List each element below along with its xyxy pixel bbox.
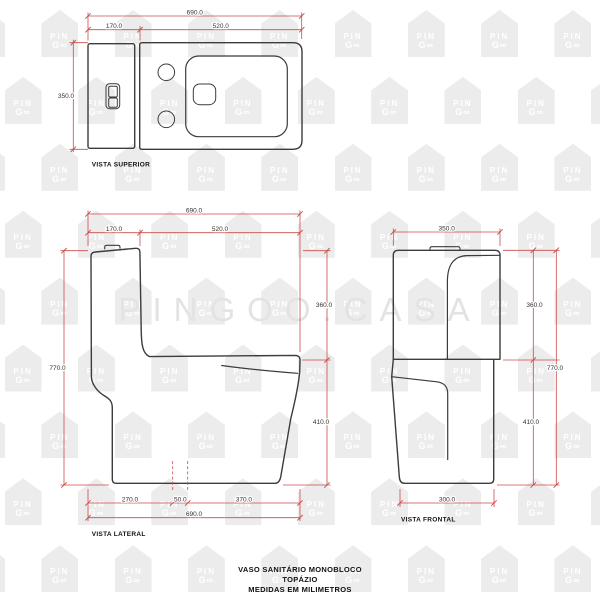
flush-button-half-top [109, 86, 118, 97]
dim-label-side-drain-offset: 50.0 [174, 497, 187, 504]
dim-label-front-tank-height: 360.0 [526, 302, 543, 309]
toilet-side-profile [91, 248, 300, 483]
front-view-dim-labels: 350.0 360.0 410.0 770.0 300.0 [439, 226, 564, 504]
front-view-outline [392, 247, 500, 484]
title-product-name: VASO SANITÁRIO MONOBLOCO [0, 565, 600, 575]
title-block: VASO SANITÁRIO MONOBLOCO TOPÁZIO MEDIDAS… [0, 565, 600, 595]
tank-front-outline [393, 250, 500, 359]
dim-label-side-base-front: 270.0 [122, 497, 139, 504]
dim-label-top-tank-depth: 170.0 [106, 23, 123, 30]
tank-top-outline [88, 44, 135, 149]
dim-label-side-base-rear: 370.0 [236, 497, 253, 504]
bolt-cap-top [158, 64, 175, 81]
side-view-caption: VISTA LATERAL [92, 531, 146, 538]
bowl-front-contour [392, 377, 448, 460]
water-outlet-outline [193, 84, 215, 105]
dim-label-side-tank-height: 360.0 [316, 302, 333, 309]
bolt-cap-bottom [158, 111, 175, 128]
side-view-outline [91, 245, 300, 483]
technical-drawing-page: PING∞PING∞PING∞PING∞PING∞PING∞PING∞PING∞… [0, 0, 600, 600]
side-view: 690.0 170.0 520.0 770.0 360.0 410.0 270.… [49, 208, 332, 539]
dim-label-side-tank-depth: 170.0 [106, 226, 123, 233]
dim-label-front-bowl-height: 410.0 [523, 419, 540, 426]
dim-label-side-total-length: 690.0 [186, 208, 203, 215]
flush-button-half-bottom [109, 98, 118, 107]
seat-split-line-side [222, 366, 298, 374]
drawing-canvas: 690.0 170.0 520.0 350.0 VISTA SUPERIOR [0, 0, 600, 600]
tank-front-contour [447, 255, 500, 359]
top-view: 690.0 170.0 520.0 350.0 VISTA SUPERIOR [58, 10, 305, 169]
dim-label-side-total-height: 770.0 [49, 365, 66, 372]
tank-lid-button-side [105, 245, 120, 249]
dim-label-front-total-height: 770.0 [547, 365, 564, 372]
dim-label-side-bowl-height: 410.0 [313, 419, 330, 426]
dim-label-top-width: 350.0 [58, 93, 75, 100]
dim-label-side-bowl-length: 520.0 [212, 226, 229, 233]
side-view-dimensions [61, 211, 331, 522]
front-view-dimensions [391, 229, 560, 508]
front-view-caption: VISTA FRONTAL [401, 517, 456, 524]
bowl-top-outline [140, 43, 302, 150]
dim-label-top-bowl-length: 520.0 [213, 23, 230, 30]
top-view-caption: VISTA SUPERIOR [92, 162, 150, 169]
top-view-dim-labels: 690.0 170.0 520.0 350.0 [58, 10, 229, 101]
title-units-note: MEDIDAS EM MILIMETROS [0, 585, 600, 595]
top-view-dimensions [70, 13, 305, 153]
seat-opening-outline [186, 56, 288, 137]
dim-label-front-base-width: 300.0 [439, 497, 456, 504]
dim-label-front-tank-width: 350.0 [439, 226, 456, 233]
title-model-name: TOPÁZIO [0, 575, 600, 585]
front-view: 350.0 360.0 410.0 770.0 300.0 VISTA FRON… [391, 226, 564, 524]
top-view-details [106, 56, 287, 137]
dim-label-side-bottom-total: 690.0 [186, 511, 203, 518]
tank-lid-button-front [430, 247, 460, 250]
dim-label-top-total-width: 690.0 [187, 10, 204, 17]
